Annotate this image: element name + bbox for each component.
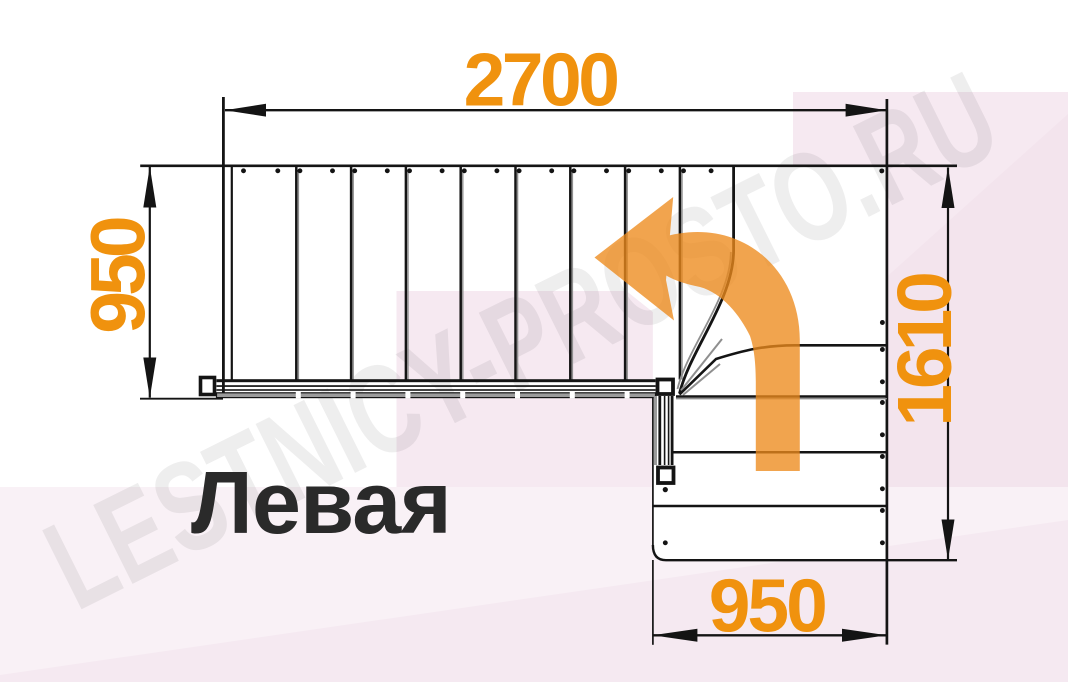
svg-text:2700: 2700 (464, 37, 618, 121)
svg-text:950: 950 (76, 218, 162, 334)
svg-text:Левая: Левая (191, 453, 451, 552)
svg-text:950: 950 (709, 564, 825, 648)
svg-text:1610: 1610 (882, 274, 968, 427)
